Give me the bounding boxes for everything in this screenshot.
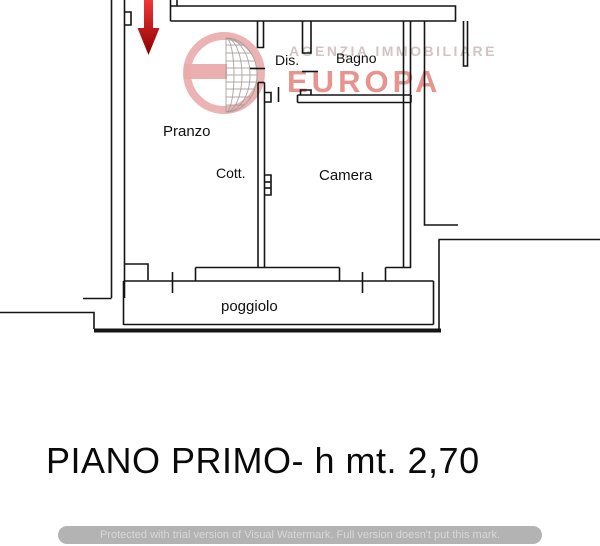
room-label-cott: Cott.	[216, 165, 246, 181]
room-label-poggiolo: poggiolo	[221, 298, 278, 315]
floor-caption: PIANO PRIMO- h mt. 2,70	[46, 440, 566, 482]
trial-watermark-banner: Protected with trial version of Visual W…	[58, 526, 542, 544]
room-label-camera: Camera	[319, 167, 372, 184]
room-label-pranzo: Pranzo	[163, 123, 211, 140]
walls-outline	[0, 0, 600, 331]
floor-plan-image: AGENZIA IMMOBILIARE EUROPA	[0, 0, 600, 546]
entrance-arrow-icon	[138, 0, 160, 55]
room-label-bagno: Bagno	[336, 50, 376, 66]
room-label-dis: Dis.	[275, 52, 299, 68]
